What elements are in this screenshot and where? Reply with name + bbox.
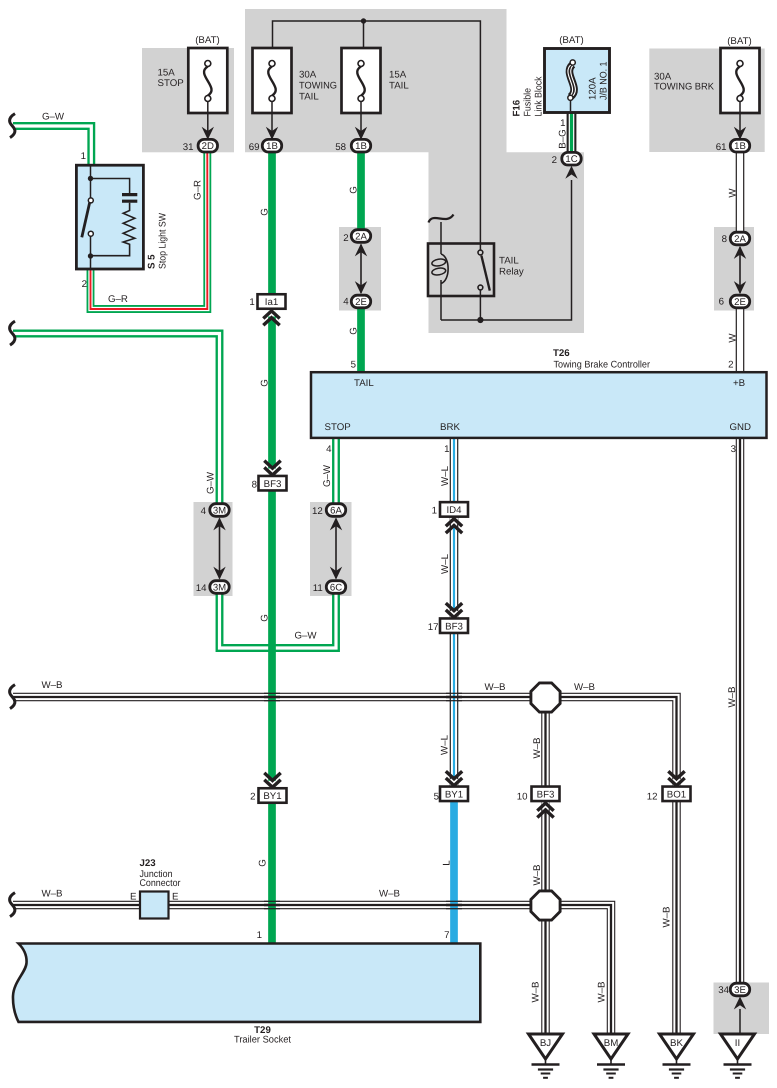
svg-text:17: 17 (428, 622, 439, 633)
svg-text:Towing Brake Controller: Towing Brake Controller (554, 360, 651, 371)
svg-text:TOWING: TOWING (299, 81, 337, 92)
svg-text:3: 3 (731, 444, 736, 455)
svg-text:69: 69 (249, 142, 260, 153)
svg-text:2E: 2E (734, 297, 746, 308)
svg-text:(BAT): (BAT) (195, 35, 220, 46)
svg-text:G: G (260, 379, 271, 387)
svg-text:T26: T26 (553, 348, 570, 359)
svg-text:J/B NO. 1: J/B NO. 1 (599, 62, 610, 101)
svg-text:8: 8 (722, 234, 727, 245)
svg-text:TAIL: TAIL (389, 81, 409, 92)
svg-text:G–W: G–W (42, 112, 65, 123)
svg-text:Link Block: Link Block (534, 76, 545, 116)
svg-text:STOP: STOP (158, 78, 184, 89)
svg-text:8: 8 (252, 480, 257, 491)
svg-text:7: 7 (444, 930, 449, 941)
svg-text:2D: 2D (202, 141, 214, 152)
svg-text:W–B: W–B (42, 680, 63, 691)
svg-text:12: 12 (312, 506, 323, 517)
svg-text:Stop Light SW: Stop Light SW (158, 212, 169, 269)
svg-text:BF3: BF3 (537, 789, 555, 800)
svg-text:W–L: W–L (440, 553, 451, 574)
svg-text:4: 4 (326, 444, 332, 455)
svg-text:2: 2 (82, 279, 87, 290)
svg-text:II: II (735, 1038, 740, 1049)
svg-text:G: G (258, 859, 269, 867)
svg-text:Trailer Socket: Trailer Socket (234, 1035, 291, 1046)
svg-text:W–B: W–B (485, 682, 506, 693)
svg-text:BRK: BRK (440, 422, 460, 433)
svg-text:120A: 120A (588, 77, 599, 100)
svg-text:2A: 2A (734, 234, 746, 245)
svg-text:G: G (260, 614, 271, 622)
svg-text:14: 14 (196, 583, 207, 594)
svg-text:1B: 1B (355, 141, 367, 152)
svg-text:TOWING BRK: TOWING BRK (654, 82, 715, 93)
svg-text:Relay: Relay (499, 267, 524, 278)
svg-text:G: G (349, 327, 360, 335)
svg-text:2: 2 (552, 155, 557, 166)
svg-text:3M: 3M (213, 506, 226, 517)
svg-text:BY1: BY1 (263, 791, 281, 802)
svg-text:2A: 2A (355, 232, 367, 243)
svg-text:E: E (172, 892, 179, 903)
svg-text:B–G: B–G (558, 129, 569, 148)
svg-text:11: 11 (313, 583, 323, 594)
svg-text:S 5: S 5 (147, 254, 158, 269)
svg-text:15A: 15A (389, 70, 407, 81)
svg-text:BY1: BY1 (445, 789, 463, 800)
svg-text:4: 4 (343, 297, 349, 308)
svg-text:W–B: W–B (574, 682, 595, 693)
svg-text:5: 5 (434, 792, 439, 803)
svg-text:E: E (130, 892, 137, 903)
svg-text:G–W: G–W (206, 471, 217, 494)
svg-text:W–L: W–L (440, 734, 451, 755)
svg-text:5: 5 (351, 360, 356, 371)
svg-text:4: 4 (201, 506, 207, 517)
svg-text:L: L (442, 860, 453, 866)
svg-text:STOP: STOP (325, 422, 351, 433)
svg-text:58: 58 (335, 142, 346, 153)
svg-text:2: 2 (343, 233, 348, 244)
svg-text:1B: 1B (734, 141, 746, 152)
svg-text:J23: J23 (140, 858, 157, 869)
svg-text:BF3: BF3 (445, 621, 463, 632)
svg-text:(BAT): (BAT) (727, 36, 752, 47)
svg-text:1: 1 (444, 444, 449, 455)
svg-text:TAIL: TAIL (499, 256, 519, 267)
svg-text:1B: 1B (266, 141, 278, 152)
svg-text:ID4: ID4 (446, 505, 462, 516)
svg-text:TAIL: TAIL (299, 92, 319, 103)
svg-text:3E: 3E (734, 985, 746, 996)
svg-text:31: 31 (183, 142, 194, 153)
svg-text:12: 12 (647, 792, 658, 803)
svg-text:BM: BM (604, 1038, 619, 1049)
svg-text:1: 1 (560, 118, 565, 129)
svg-text:Fusible: Fusible (523, 88, 534, 117)
svg-text:1C: 1C (565, 154, 577, 165)
svg-text:G: G (260, 208, 271, 216)
svg-text:+B: +B (733, 378, 745, 389)
svg-text:W–B: W–B (597, 982, 608, 1003)
svg-text:61: 61 (716, 142, 727, 153)
svg-text:G–W: G–W (295, 631, 318, 642)
svg-text:W–L: W–L (440, 465, 451, 486)
svg-text:34: 34 (718, 985, 729, 996)
svg-text:6: 6 (719, 297, 724, 308)
svg-text:W–B: W–B (531, 982, 542, 1003)
svg-text:W–B: W–B (42, 889, 63, 900)
svg-text:Ia1: Ia1 (265, 297, 278, 308)
svg-text:BK: BK (670, 1038, 683, 1049)
svg-text:1: 1 (81, 151, 86, 162)
svg-text:2: 2 (728, 360, 733, 371)
svg-text:2E: 2E (355, 297, 367, 308)
svg-text:(BAT): (BAT) (559, 35, 584, 46)
svg-text:W–B: W–B (532, 865, 543, 886)
svg-text:G–R: G–R (108, 294, 128, 305)
svg-text:1: 1 (432, 506, 437, 517)
svg-text:Connector: Connector (140, 878, 182, 889)
svg-text:GND: GND (730, 422, 752, 433)
svg-text:2: 2 (250, 792, 255, 803)
svg-text:W–B: W–B (379, 889, 400, 900)
svg-text:W: W (728, 188, 739, 198)
svg-text:W–B: W–B (662, 907, 673, 928)
svg-text:G: G (349, 186, 360, 194)
svg-text:BF3: BF3 (264, 479, 282, 490)
svg-text:G–W: G–W (322, 464, 333, 487)
svg-text:TAIL: TAIL (354, 378, 374, 389)
svg-text:W: W (728, 333, 739, 343)
svg-text:BO1: BO1 (667, 789, 686, 800)
svg-text:6A: 6A (330, 506, 342, 517)
svg-text:1: 1 (257, 930, 262, 941)
svg-text:1: 1 (249, 297, 254, 308)
svg-text:10: 10 (517, 792, 528, 803)
svg-text:F16: F16 (512, 99, 523, 116)
svg-text:W–B: W–B (532, 738, 543, 759)
svg-text:30A: 30A (299, 70, 317, 81)
svg-text:W–B: W–B (727, 687, 738, 708)
svg-text:G–R: G–R (193, 180, 204, 200)
svg-text:3M: 3M (213, 583, 226, 594)
svg-text:6C: 6C (330, 583, 342, 594)
svg-text:BJ: BJ (540, 1038, 551, 1049)
svg-text:15A: 15A (158, 68, 176, 79)
